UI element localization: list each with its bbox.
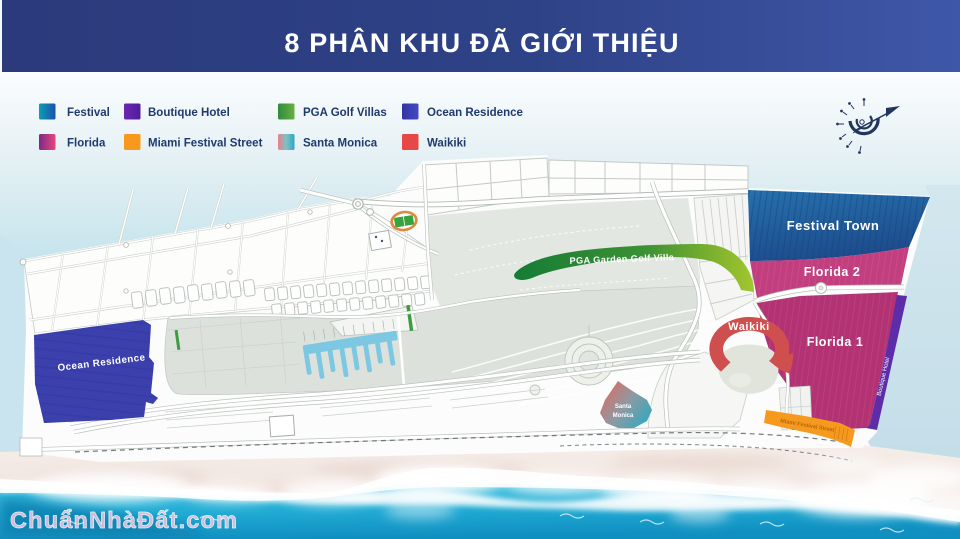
svg-text:ChuẩnNhàĐất.com: ChuẩnNhàĐất.com [10,507,238,533]
svg-text:8 PHÂN KHU ĐÃ GIỚI THIỆU: 8 PHÂN KHU ĐÃ GIỚI THIỆU [284,27,679,58]
svg-text:Santa: Santa [615,404,632,410]
svg-text:Florida 1: Florida 1 [807,335,864,349]
svg-text:Boutique Hotel: Boutique Hotel [148,107,230,119]
svg-text:Waikiki: Waikiki [427,138,466,150]
svg-text:Florida: Florida [67,138,106,150]
svg-text:Santa Monica: Santa Monica [303,138,378,150]
svg-text:Miami Festival Street: Miami Festival Street [148,138,263,150]
svg-text:Festival: Festival [67,107,110,119]
svg-text:Florida 2: Florida 2 [804,265,861,279]
svg-text:Waikiki: Waikiki [728,321,770,333]
svg-text:Festival Town: Festival Town [787,218,880,233]
svg-text:PGA Golf Villas: PGA Golf Villas [303,107,387,119]
svg-text:Monica: Monica [613,413,634,419]
svg-text:Ocean Residence: Ocean Residence [427,107,523,119]
